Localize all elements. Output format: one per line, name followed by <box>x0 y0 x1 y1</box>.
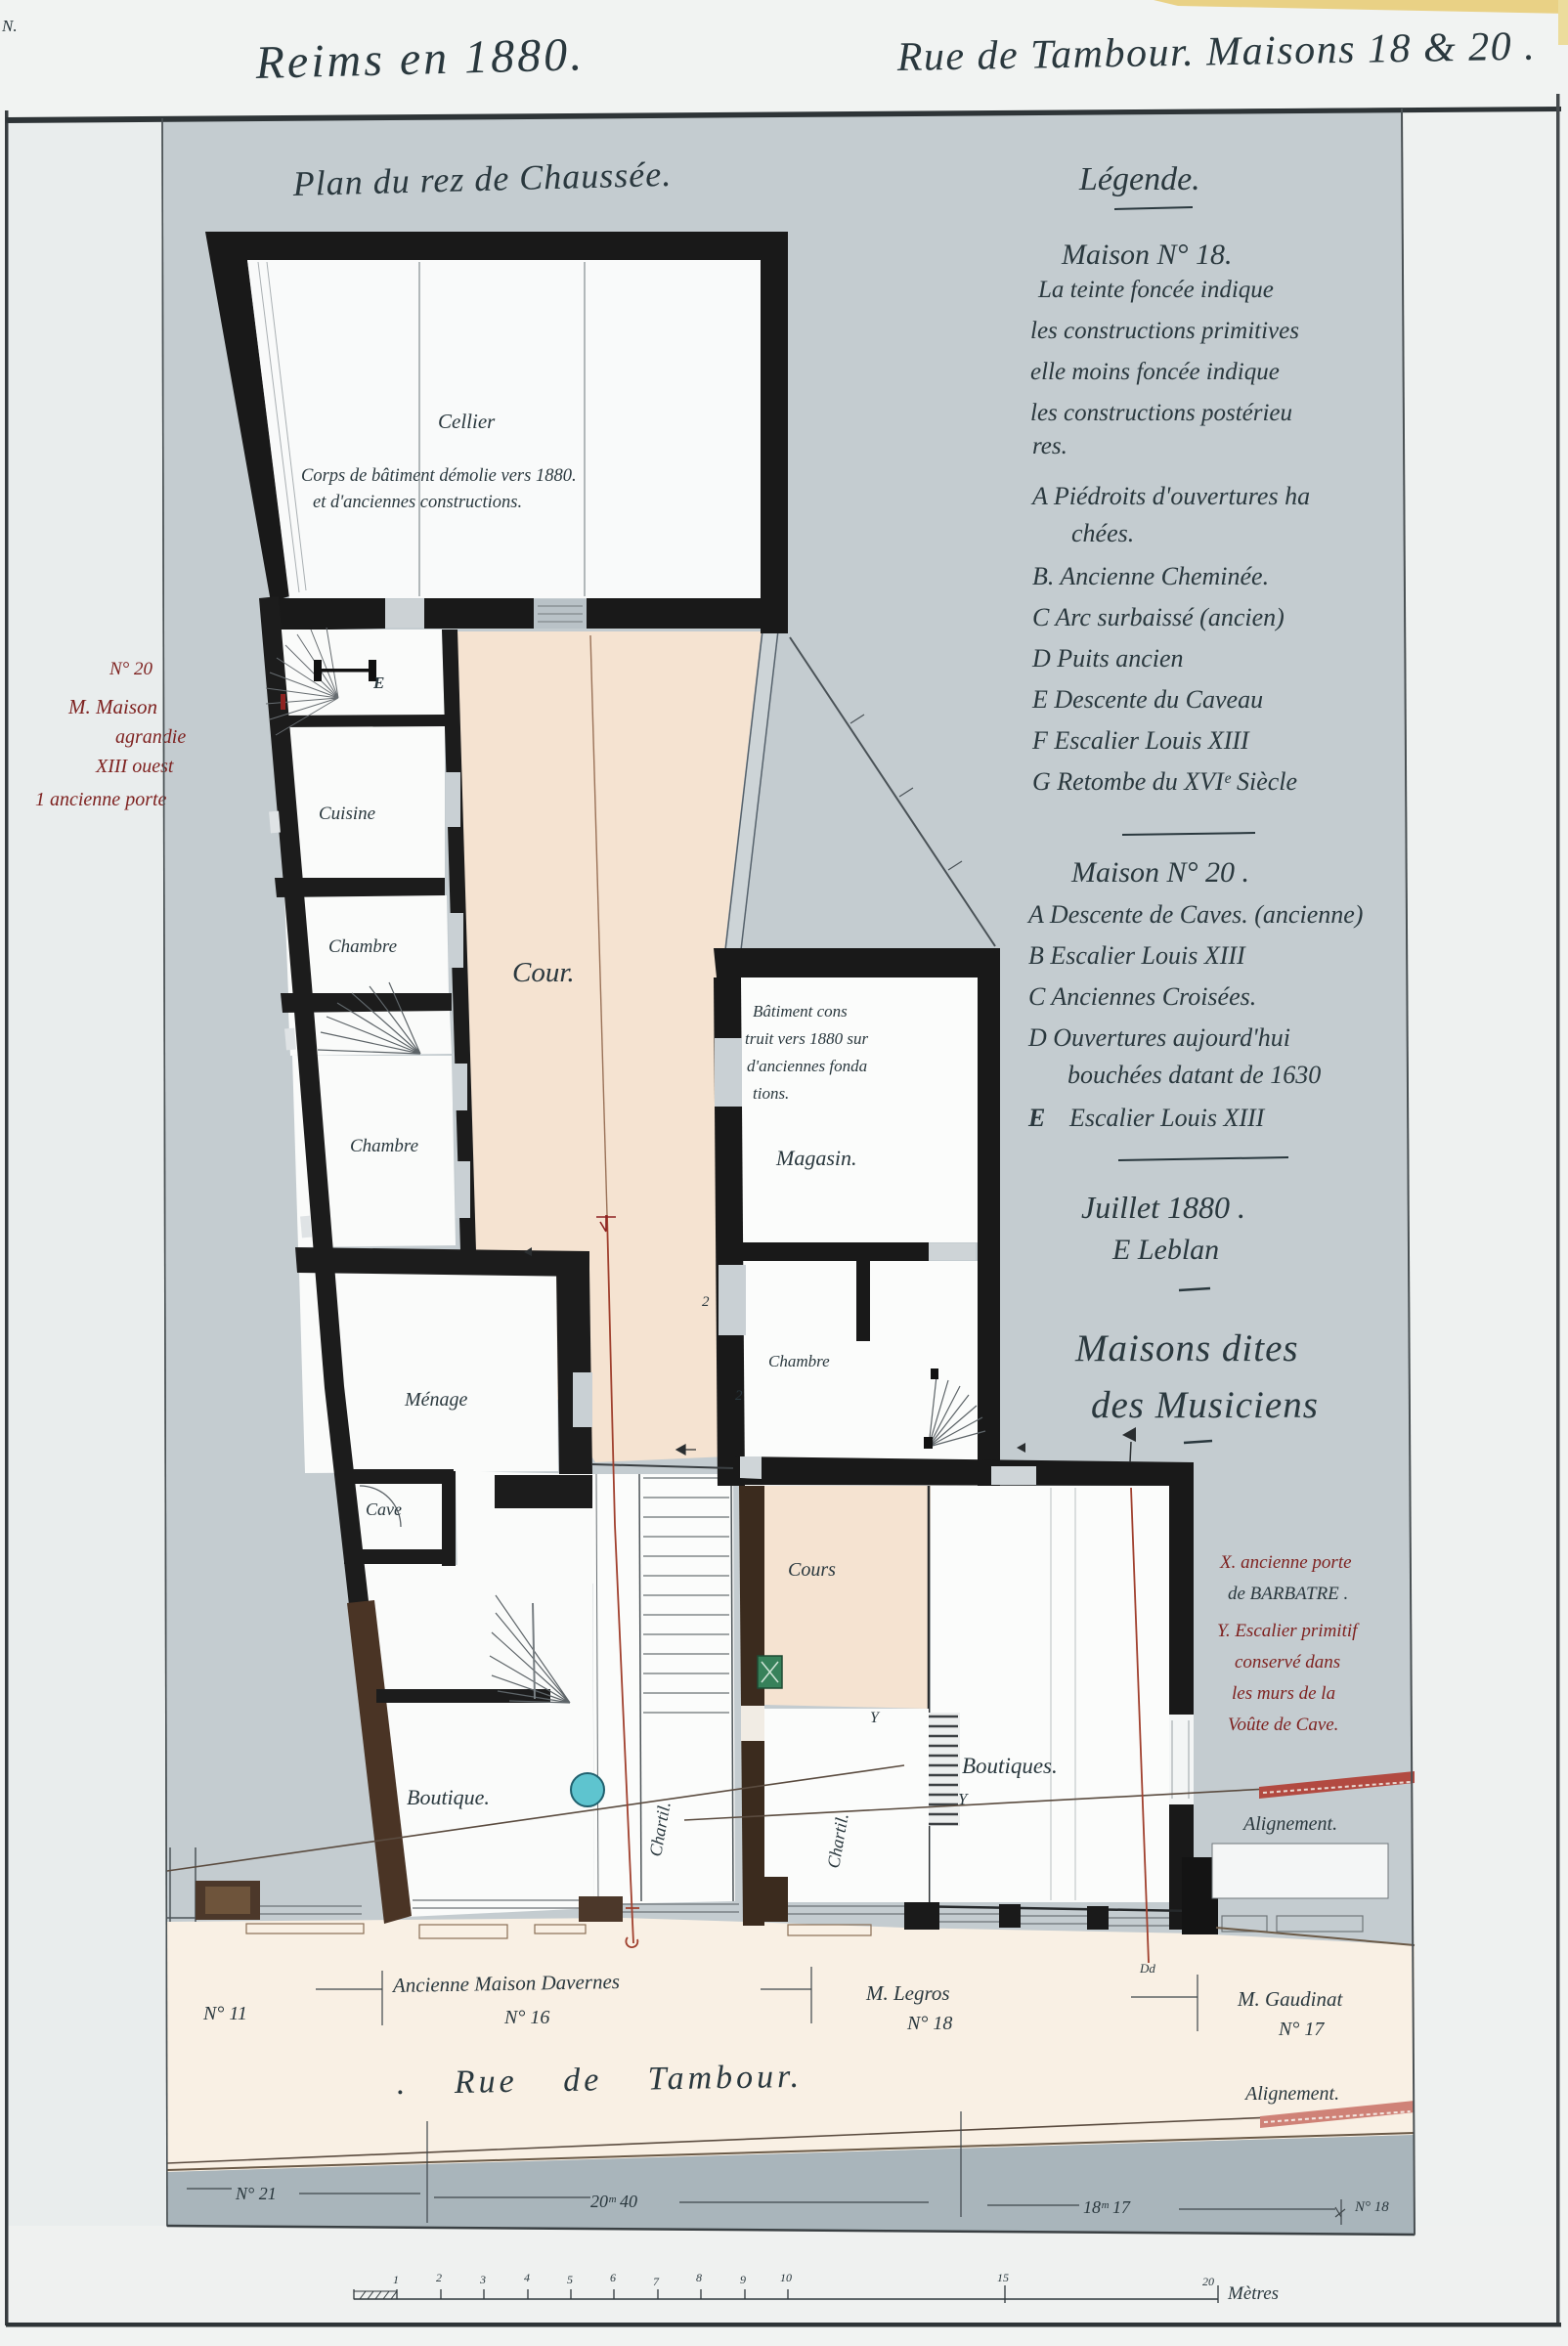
svg-text:G Retombe du XVIᵉ Siècle: G Retombe du XVIᵉ Siècle <box>1032 767 1297 796</box>
svg-text:Cave: Cave <box>366 1499 402 1519</box>
svg-text:Reims en 1880.: Reims en 1880. <box>254 28 586 89</box>
svg-text:6: 6 <box>610 2271 616 2284</box>
svg-text:X. ancienne porte: X. ancienne porte <box>1219 1552 1352 1573</box>
svg-text:Boutique.: Boutique. <box>407 1785 490 1809</box>
svg-text:5: 5 <box>567 2273 573 2286</box>
svg-text:d'anciennes fonda: d'anciennes fonda <box>747 1057 867 1075</box>
svg-text:Chambre: Chambre <box>768 1352 830 1370</box>
svg-text:Maison N° 20 .: Maison N° 20 . <box>1070 856 1249 889</box>
svg-text:2: 2 <box>735 1388 743 1404</box>
svg-text:N° 18: N° 18 <box>1354 2199 1389 2215</box>
svg-text:agrandie: agrandie <box>115 726 186 748</box>
svg-text:Juillet 1880 .: Juillet 1880 . <box>1081 1190 1245 1225</box>
svg-text:N° 21: N° 21 <box>235 2184 277 2203</box>
svg-text:8: 8 <box>696 2271 702 2284</box>
svg-text:elle moins foncée indique: elle moins foncée indique <box>1030 359 1280 385</box>
svg-text:2: 2 <box>702 1294 710 1310</box>
svg-text:B Escalier Louis XIII: B Escalier Louis XIII <box>1028 941 1246 970</box>
svg-text:Maisons dites: Maisons dites <box>1074 1327 1299 1369</box>
svg-text:M. Maison: M. Maison <box>67 695 157 718</box>
svg-text:E: E <box>372 673 384 692</box>
svg-text:Ménage: Ménage <box>404 1389 468 1411</box>
svg-text:Escalier Louis XIII: Escalier Louis XIII <box>1068 1104 1266 1132</box>
svg-text:les murs de la: les murs de la <box>1232 1683 1335 1704</box>
svg-text:B. Ancienne Cheminée.: B. Ancienne Cheminée. <box>1032 562 1269 590</box>
svg-text:3: 3 <box>479 2273 486 2286</box>
svg-text:les constructions primitives: les constructions primitives <box>1030 318 1299 344</box>
svg-text:res.: res. <box>1032 433 1067 459</box>
svg-text:10: 10 <box>780 2271 792 2284</box>
svg-text:Cellier: Cellier <box>438 410 496 433</box>
svg-text:15: 15 <box>997 2271 1009 2284</box>
svg-text:7: 7 <box>653 2275 660 2288</box>
svg-text:Chambre: Chambre <box>328 936 397 957</box>
svg-text:Magasin.: Magasin. <box>775 1146 857 1170</box>
svg-text:Cour.: Cour. <box>512 957 575 988</box>
svg-text:20: 20 <box>1202 2275 1214 2288</box>
svg-text:truit vers 1880 sur: truit vers 1880 sur <box>745 1029 868 1048</box>
svg-text:9: 9 <box>740 2273 746 2286</box>
svg-text:Voûte de Cave.: Voûte de Cave. <box>1228 1715 1338 1735</box>
svg-text:Dd: Dd <box>1139 1961 1155 1976</box>
svg-text:E: E <box>1027 1104 1045 1132</box>
svg-text:E Descente du Caveau: E Descente du Caveau <box>1031 685 1263 714</box>
svg-text:A Piédroits d'ouvertures ha: A Piédroits d'ouvertures ha <box>1030 482 1310 510</box>
svg-text:Légende.: Légende. <box>1078 161 1200 197</box>
svg-text:bouchées datant de 1630: bouchées datant de 1630 <box>1067 1061 1321 1089</box>
svg-text:conservé dans: conservé dans <box>1235 1652 1340 1673</box>
svg-text:tions.: tions. <box>753 1084 789 1103</box>
svg-text:N.: N. <box>1 17 18 35</box>
svg-text:N° 17: N° 17 <box>1278 2019 1325 2040</box>
svg-text:N° 11: N° 11 <box>202 2003 247 2024</box>
svg-text:Corps de bâtiment démolie vers: Corps de bâtiment démolie vers 1880. <box>301 466 577 486</box>
svg-text:M. Gaudinat: M. Gaudinat <box>1237 1987 1343 2011</box>
svg-text:Ancienne Maison Davernes: Ancienne Maison Davernes <box>391 1970 620 1997</box>
svg-text:La teinte foncée indique: La teinte foncée indique <box>1037 277 1274 303</box>
svg-text:XIII ouest: XIII ouest <box>95 756 174 777</box>
svg-text:Maison N° 18.: Maison N° 18. <box>1061 239 1233 271</box>
svg-text:des Musiciens: des Musiciens <box>1091 1384 1319 1426</box>
svg-text:et d'anciennes constructions.: et d'anciennes constructions. <box>313 493 522 512</box>
svg-text:A Descente de Caves. (ancienne: A Descente de Caves. (ancienne) <box>1026 900 1363 929</box>
svg-text:C Arc surbaissé (ancien): C Arc surbaissé (ancien) <box>1032 603 1285 631</box>
svg-text:Mètres: Mètres <box>1227 2283 1279 2304</box>
svg-text:F Escalier Louis XIII: F Escalier Louis XIII <box>1031 726 1250 755</box>
svg-text:Alignement.: Alignement. <box>1241 1813 1337 1835</box>
svg-text:D Ouvertures aujourd'hui: D Ouvertures aujourd'hui <box>1027 1023 1290 1052</box>
svg-text:D Puits ancien: D Puits ancien <box>1031 644 1184 673</box>
svg-text:Chambre: Chambre <box>350 1136 418 1156</box>
svg-text:N° 16: N° 16 <box>503 2007 549 2028</box>
svg-text:Y. Escalier primitif: Y. Escalier primitif <box>1217 1621 1360 1641</box>
svg-text:4: 4 <box>524 2271 530 2284</box>
svg-text:Boutiques.: Boutiques. <box>962 1754 1058 1778</box>
svg-text:Alignement.: Alignement. <box>1243 2083 1339 2105</box>
svg-text:. Rue de Tambour.: . Rue de Tambour. <box>396 2059 803 2102</box>
svg-text:Cours: Cours <box>788 1559 836 1581</box>
svg-text:18ᵐ 17: 18ᵐ 17 <box>1083 2197 1131 2217</box>
svg-text:Bâtiment cons: Bâtiment cons <box>753 1002 848 1021</box>
svg-text:N° 18: N° 18 <box>906 2013 952 2034</box>
svg-text:M. Legros: M. Legros <box>865 1981 950 2005</box>
svg-text:1: 1 <box>393 2273 399 2286</box>
svg-text:E Leblan: E Leblan <box>1111 1234 1219 1266</box>
svg-text:les constructions postérieu: les constructions postérieu <box>1030 400 1292 426</box>
svg-text:20ᵐ 40: 20ᵐ 40 <box>590 2192 637 2211</box>
svg-text:2: 2 <box>436 2271 442 2284</box>
svg-text:C Anciennes Croisées.: C Anciennes Croisées. <box>1028 982 1256 1011</box>
svg-text:Cuisine: Cuisine <box>319 804 375 824</box>
svg-text:chées.: chées. <box>1071 519 1134 547</box>
svg-text:de BARBATRE .: de BARBATRE . <box>1228 1584 1348 1604</box>
svg-text:1 ancienne porte: 1 ancienne porte <box>35 789 167 810</box>
svg-text:N° 20: N° 20 <box>109 659 153 679</box>
